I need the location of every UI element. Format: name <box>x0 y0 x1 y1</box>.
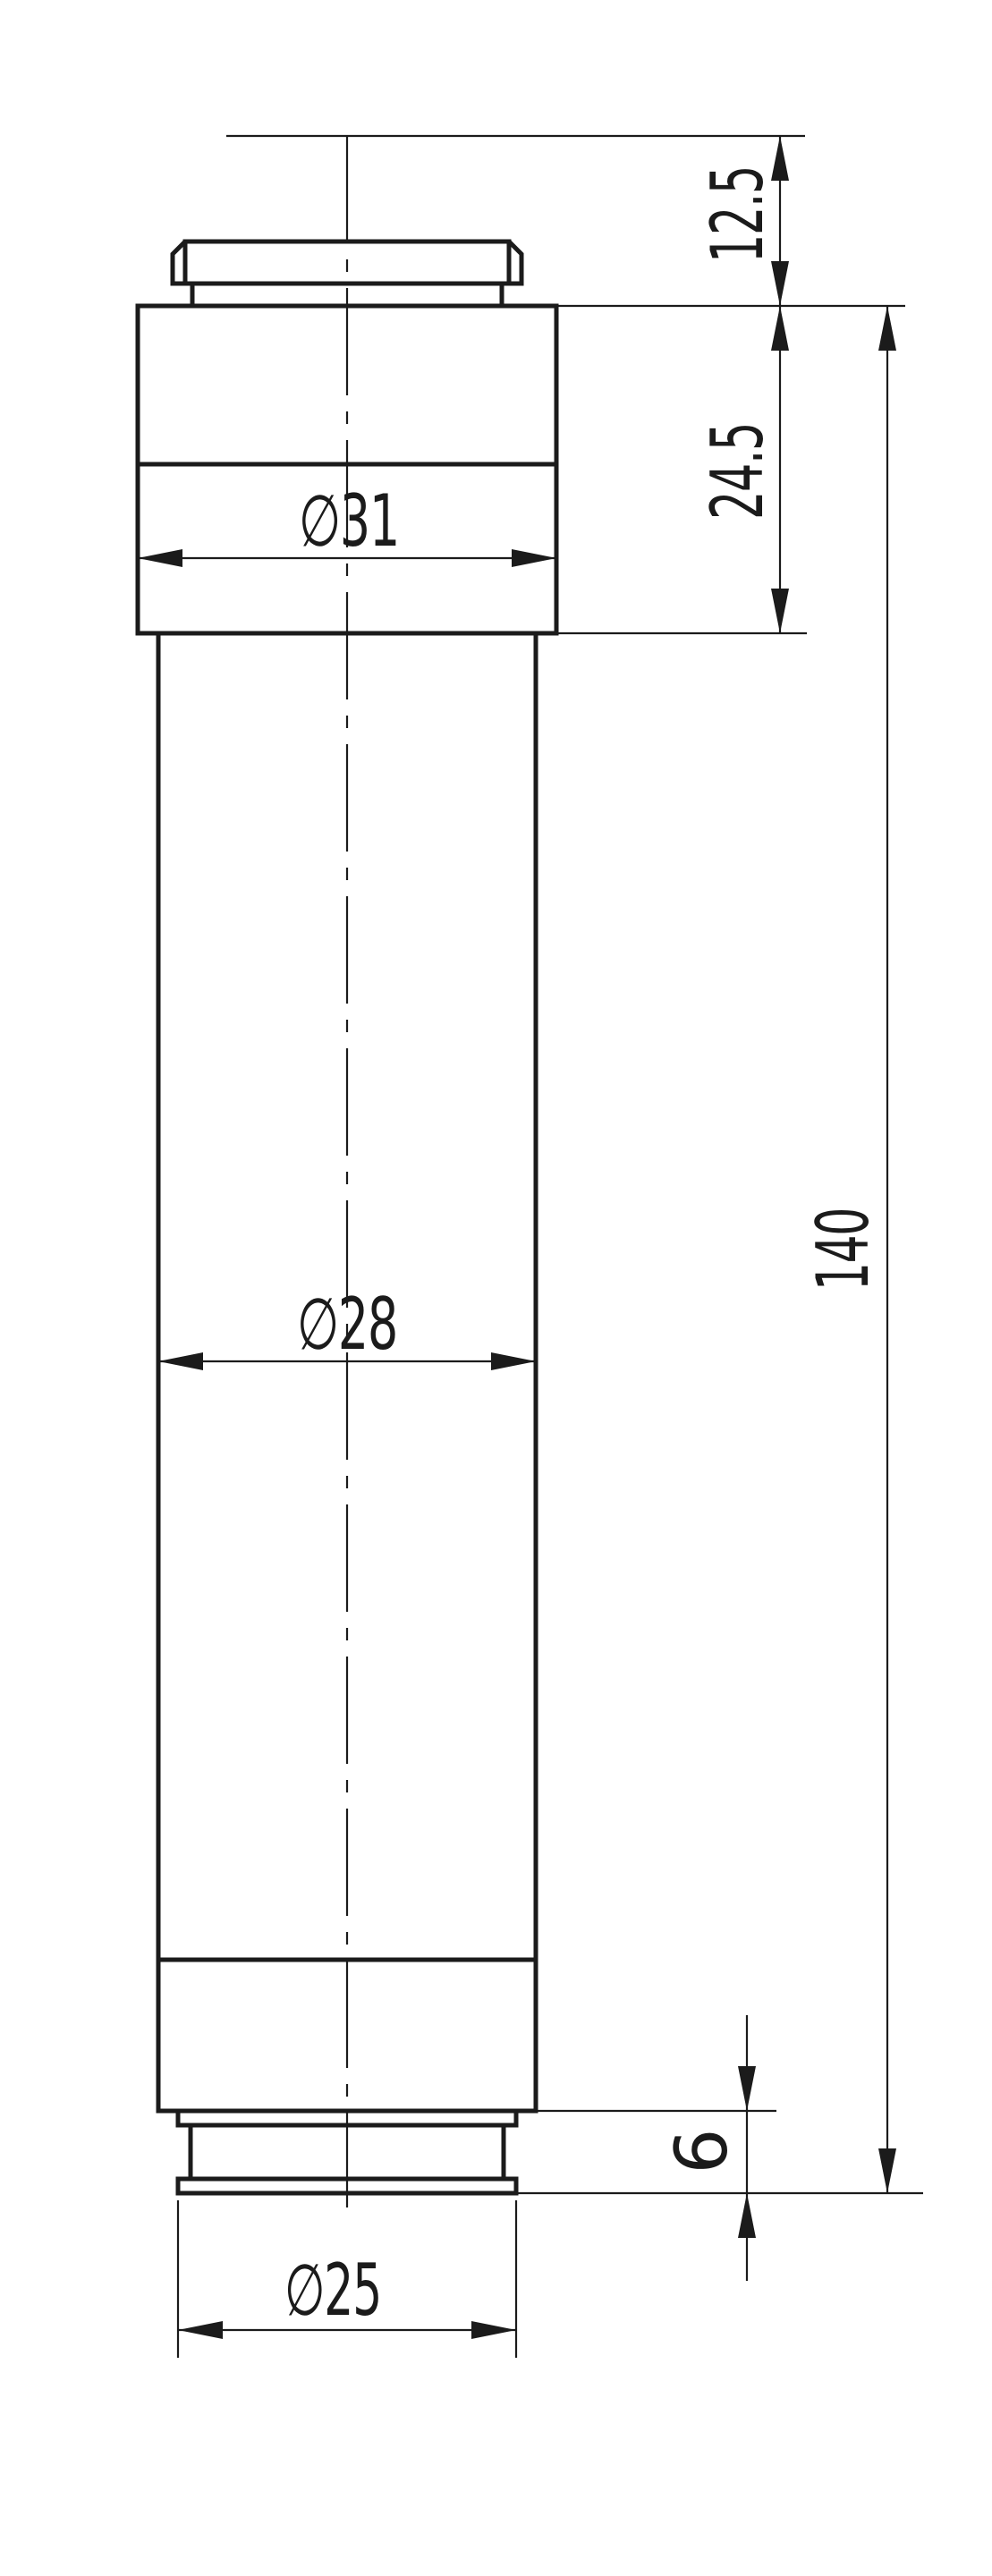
arrowhead-tail-step-top <box>738 2066 756 2111</box>
arrowhead-body-diameter-left <box>158 1352 203 1370</box>
arrowhead-head-diameter-right <box>512 549 556 567</box>
dim-label-head-height: 24.5 <box>696 423 779 520</box>
arrowhead-tail-step-bottom <box>738 2193 756 2238</box>
arrowhead-cap-offset-bottom <box>771 261 789 306</box>
arrowhead-head-height-top <box>771 306 789 351</box>
arrowhead-head-diameter-left <box>138 549 182 567</box>
dim-label-overall-length: 140 <box>801 1208 885 1291</box>
arrowhead-tail-diameter-left <box>178 2321 223 2339</box>
dim-label-cap-offset: 12.5 <box>696 166 779 263</box>
dim-label-tail-diameter: ∅25 <box>284 2249 381 2332</box>
dim-label-head-diameter: ∅31 <box>299 479 399 563</box>
arrowhead-overall-length-top <box>878 306 896 351</box>
arrowhead-body-diameter-right <box>491 1352 536 1370</box>
arrowhead-tail-diameter-right <box>471 2321 516 2339</box>
part-drawing-svg: 12.5 24.5 140 6 ∅31 ∅28 ∅25 <box>0 0 992 2576</box>
dim-label-tail-step: 6 <box>660 2131 743 2174</box>
arrowhead-overall-length-bottom <box>878 2148 896 2193</box>
technical-drawing-page: 12.5 24.5 140 6 ∅31 ∅28 ∅25 <box>0 0 992 2576</box>
arrowhead-head-height-bottom <box>771 589 789 633</box>
dim-label-body-diameter: ∅28 <box>297 1283 397 1366</box>
